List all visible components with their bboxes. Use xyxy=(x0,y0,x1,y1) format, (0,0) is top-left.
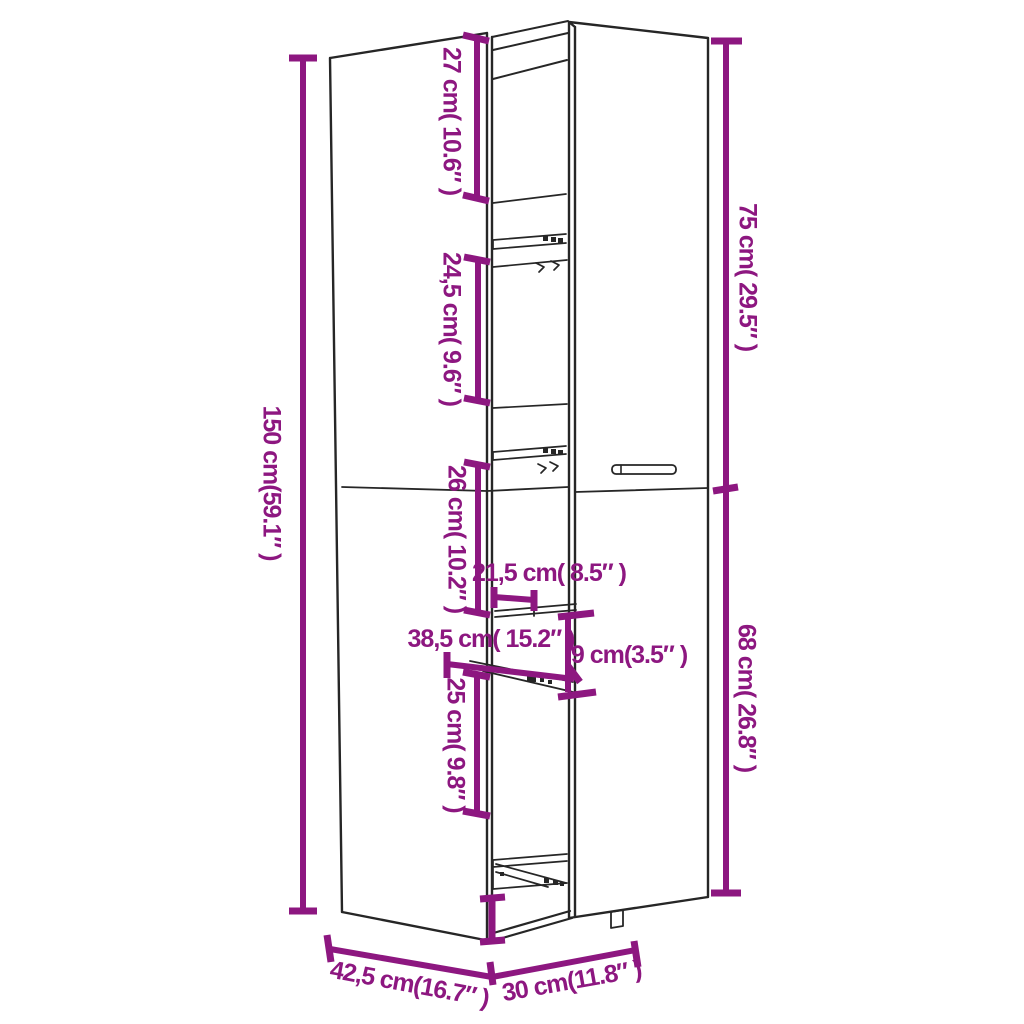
pullout-shelves xyxy=(493,194,567,408)
dimension-label-pullout-depth: 38,5 cm( 15.2″ ) xyxy=(408,625,576,653)
drawer-rail-middle-screws xyxy=(543,448,563,455)
cabinet-dimension-diagram: 150 cm(59.1″ ) 27 cm( 10.6″ ) 24,5 cm( 9… xyxy=(0,0,1024,1024)
dimension-label-lower-compartment: 25 cm( 9.8″ ) xyxy=(441,677,469,813)
dimension-label-upper-compartment: 24,5 cm( 9.6″ ) xyxy=(437,252,465,407)
diagram-canvas: 150 cm(59.1″ ) 27 cm( 10.6″ ) 24,5 cm( 9… xyxy=(0,0,1024,1024)
dimension-label-basket-height: 9 cm(3.5″ ) xyxy=(571,641,688,669)
dimension-label-middle-compartment: 26 cm( 10.2″ ) xyxy=(442,465,470,614)
shelf-hooks-middle xyxy=(538,462,558,473)
dimension-label-upper-door: 75 cm( 29.5″ ) xyxy=(733,203,761,352)
drawer-rail-upper-screws xyxy=(543,236,563,243)
door-split-line xyxy=(575,488,708,492)
cabinet-bottom-edge xyxy=(490,911,572,941)
dimension-label-total-height: 150 cm(59.1″ ) xyxy=(257,405,285,561)
dimension-line-plinth-gap xyxy=(480,897,505,942)
dimension-label-top-compartment: 27 cm( 10.6″ ) xyxy=(437,47,465,196)
dimension-label-internal-width: 21,5 cm( 8.5″ ) xyxy=(472,559,627,587)
dimension-line-top-compartment xyxy=(463,35,489,201)
cabinet-top-panel xyxy=(492,21,568,79)
cabinet-foot xyxy=(611,910,623,928)
door-handle xyxy=(612,465,676,474)
cabinet-line-drawing xyxy=(330,21,708,941)
dimension-line-total-height xyxy=(289,58,317,911)
dimension-label-lower-door: 68 cm( 26.8″ ) xyxy=(732,624,760,773)
dimension-lines xyxy=(289,35,742,985)
